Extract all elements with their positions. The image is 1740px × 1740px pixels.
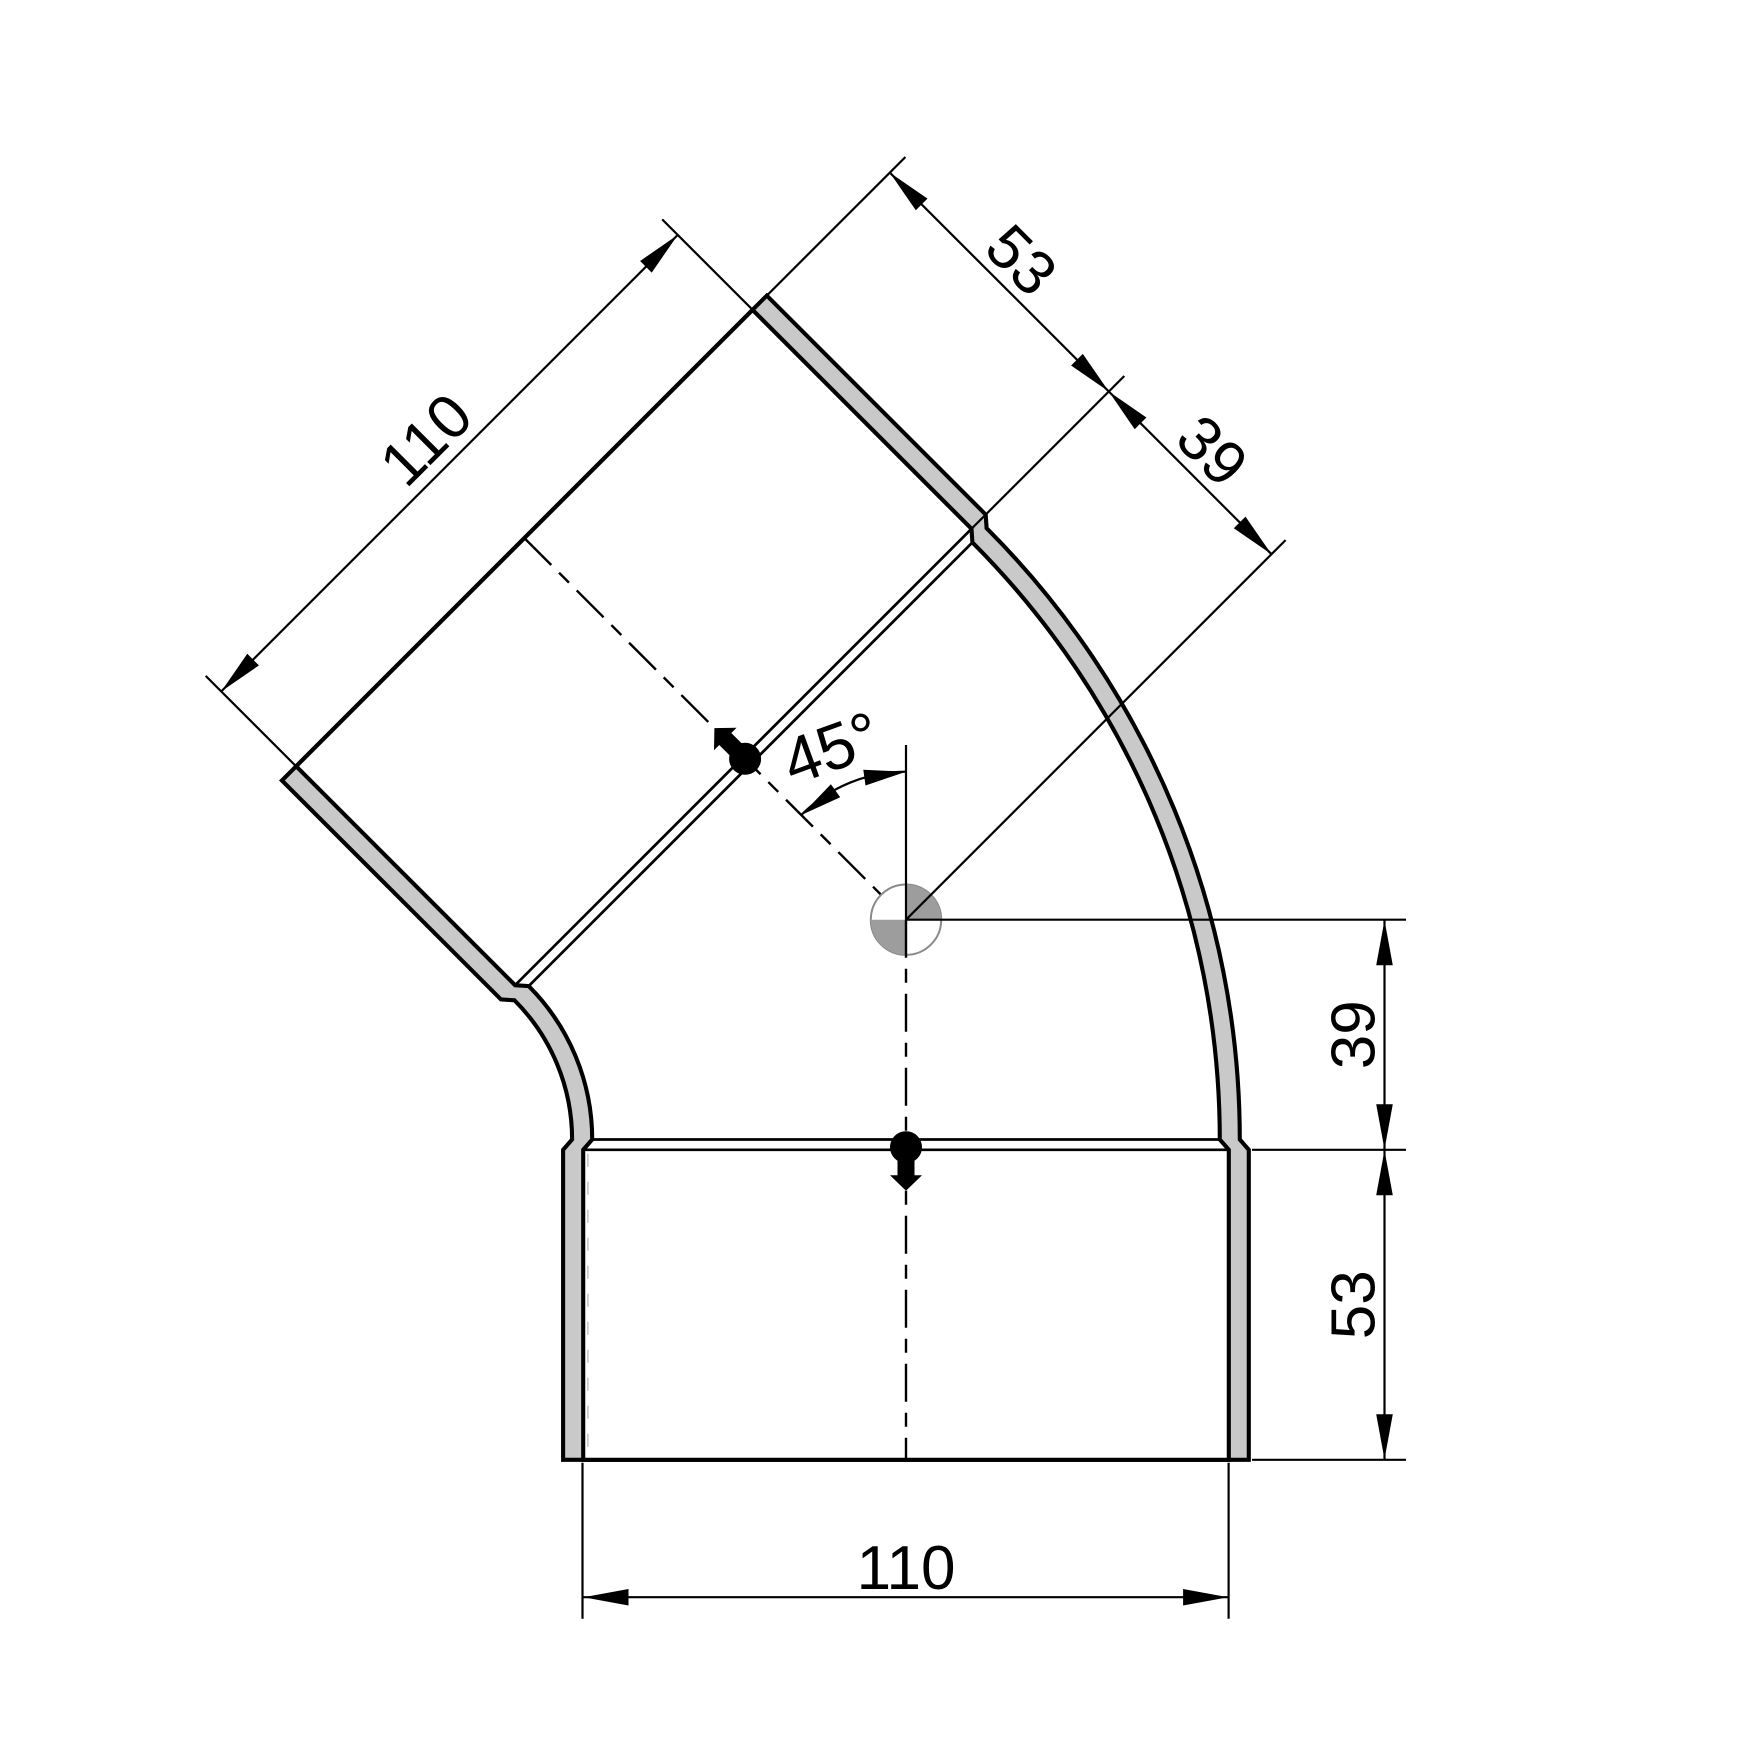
svg-text:39: 39 [1320, 1000, 1389, 1069]
svg-text:53: 53 [1320, 1270, 1389, 1339]
svg-text:110: 110 [857, 1534, 956, 1603]
